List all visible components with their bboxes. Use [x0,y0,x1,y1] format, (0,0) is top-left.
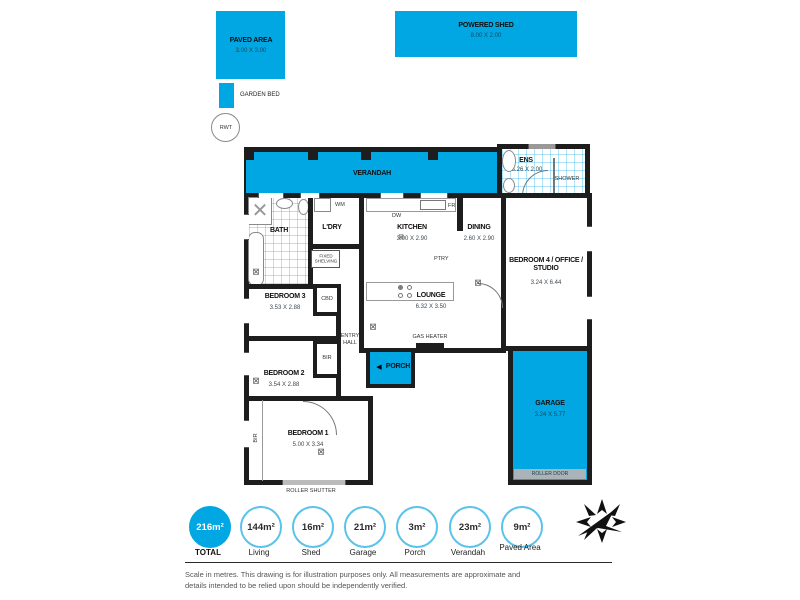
paved-area-dims: 3.00 X 3.00 [236,48,267,54]
lounge-label: LOUNGE [417,292,446,300]
shower-x-icon: ✕ [252,201,269,221]
shower-label: SHOWER [555,176,580,182]
legend-circle-living: 144m² [240,506,282,548]
verandah-label: VERANDAH [353,170,391,178]
dining-label: DINING [467,224,490,232]
legend-value: 21m² [354,522,376,533]
disclaimer-text: Scale in metres. This drawing is for ill… [185,570,530,591]
legend-circle-shed: 16m² [292,506,334,548]
legend-circle-porch: 3m² [396,506,438,548]
bedroom4-label: BEDROOM 4 / OFFICE / STUDIO [507,257,585,273]
bedroom4-dims: 3.24 X 6.44 [531,280,562,286]
legend-circle-garage: 21m² [344,506,386,548]
legend-value: 16m² [302,522,324,533]
legend-value: 3m² [409,522,426,533]
ensuite-window [528,144,556,149]
living-open-plan [359,193,506,353]
verandah-post [428,152,438,160]
legend-label-porch: Porch [387,548,443,557]
bedroom3-dims: 3.53 X 2.88 [270,305,301,311]
window [244,298,249,324]
bedroom3-label: BEDROOM 3 [265,293,306,301]
legend-label-garage: Garage [335,548,391,557]
cupboard-label: CBD [321,296,333,302]
compass-icon [572,498,628,548]
verandah-post [244,152,254,160]
paved-area-label: PAVED AREA [230,37,273,45]
legend-label-verandah: Verandah [440,548,496,557]
dishwasher-label: DW [392,213,401,219]
window [380,193,404,198]
legend-value: 23m² [459,522,481,533]
garage-dims: 3.24 X 5.77 [535,412,566,418]
light-symbol: ⊠ [474,278,482,289]
garage-label: GARAGE [535,400,565,408]
kitchen-label: KITCHEN [397,224,427,232]
window [300,193,320,198]
shower-screen-wall [553,158,555,196]
ensuite-toilet [503,178,515,193]
window [420,193,448,198]
floor-plan-page: PAVED AREA 3.00 X 3.00 POWERED SHED 8.00… [0,0,800,600]
legend-circle-total: 216m² [189,506,231,548]
stove-burner [398,293,403,298]
paved-area-shape [216,11,285,79]
dining-dims: 2.60 X 2.90 [464,236,495,242]
gas-heater-unit [416,343,444,351]
legend-circle-paved: 9m² [501,506,543,548]
window [244,214,249,240]
legend-circle-verandah: 23m² [449,506,491,548]
washing-machine-label: WM [335,202,345,208]
fixed-shelving-label: FIXED SHELVING [313,254,339,265]
powered-shed-dims: 8.00 X 2.00 [471,33,502,39]
bedroom2-label: BEDROOM 2 [264,370,305,378]
light-symbol: ⊠ [252,267,260,278]
window [258,193,284,198]
powered-shed-label: POWERED SHED [458,22,513,30]
window [244,420,249,448]
window [244,352,249,376]
verandah-post [308,152,318,160]
robe-label: BIR [322,355,331,361]
window [587,296,592,320]
ensuite-vanity [502,150,516,172]
pantry-label: PTRY [434,256,449,262]
legend-label-paved: Paved Area [492,543,548,552]
verandah-post [361,152,371,160]
bathtub [248,232,264,286]
kitchen-sink [420,200,446,210]
light-symbol: ⊠ [398,233,404,241]
stove-cooktop [398,285,403,290]
verandah-top-wall [244,147,502,152]
legend-label-shed: Shed [283,548,339,557]
rwt-label: RWT [220,125,232,131]
legend-divider [185,562,612,563]
bedroom2-dims: 3.54 X 2.88 [269,382,300,388]
porch-label: PORCH [386,363,410,371]
legend-value: 144m² [247,522,274,533]
stove-burner [407,285,412,290]
legend-value: 9m² [514,522,531,533]
ensuite-label: ENS [519,157,533,165]
garden-bed-label: GARDEN BED [240,92,280,98]
stove-burner [407,293,412,298]
kitchen-dining-divider-wall [457,193,463,231]
bath-label: BATH [270,227,288,235]
legend-value: 216m² [196,522,223,533]
garden-bed-shape [219,83,234,108]
laundry-label: L'DRY [322,224,341,232]
entry-arrow-icon: ◀ [376,363,381,371]
legend-label-total: TOTAL [180,548,236,557]
light-symbol: ⊠ [252,376,260,387]
light-symbol: ⊠ [317,447,325,458]
roller-shutter-opening [282,480,346,485]
light-symbol: ⊠ [369,322,377,333]
roller-door-label: ROLLER DOOR [532,471,568,477]
washing-machine [314,198,331,212]
entry-hall-label: ENTRY HALL [337,333,363,347]
fridge-label: FR [448,203,455,209]
legend-label-living: Living [231,548,287,557]
bath-basin [276,198,293,209]
window [587,226,592,252]
roller-shutter-label: ROLLER SHUTTER [286,488,336,494]
gas-heater-label: GAS HEATER [412,334,447,340]
lounge-dims: 6.32 X 3.50 [416,304,447,310]
bedroom1-robe-label: BIR [253,433,259,442]
